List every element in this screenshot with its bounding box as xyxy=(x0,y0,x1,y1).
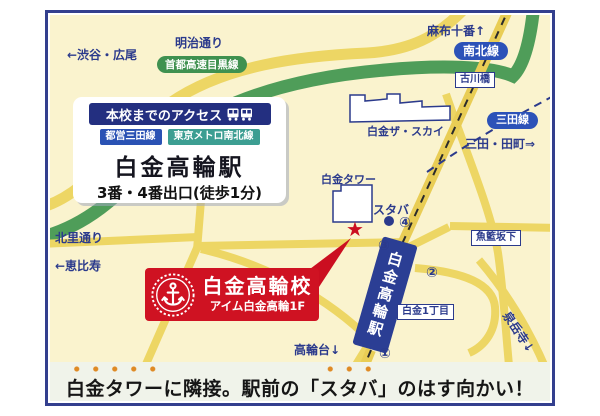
school-name: 白金高輪校 xyxy=(196,275,319,297)
banner-part-adjacent: に隣接。駅前の「 xyxy=(163,365,319,401)
metro-namboku-line-badge: 東京メトロ南北線 xyxy=(168,129,260,145)
exit-4-marker: ④ xyxy=(399,215,411,231)
expressway-label: 首都高速目黒線 xyxy=(157,56,247,73)
access-header: 本校までのアクセス xyxy=(89,103,271,125)
shibuya-hiroo-label: ←渋谷・広尾 xyxy=(67,46,137,63)
line-badges: 都営三田線 東京メトロ南北線 xyxy=(73,129,286,145)
exit-1-marker: ① xyxy=(379,346,391,362)
shirokane-1chome-badge: 白金1丁目 xyxy=(397,304,454,320)
namboku-line-badge: 南北線 xyxy=(454,42,508,60)
meiji-dori-label: 明治通り xyxy=(175,34,223,51)
takanawadai-label: 高輪台↓ xyxy=(294,341,340,358)
furukawabashi-badge: 古川橋 xyxy=(455,72,495,88)
location-star-icon: ★ xyxy=(346,219,364,239)
banner-part-across: 」のはす向かい！ xyxy=(378,365,534,401)
exit-2-marker: ② xyxy=(426,265,438,281)
access-info-box: 本校までのアクセス 都営三田線 東京メトロ南北線 白金高輪駅 3番・4番出口(徒… xyxy=(73,97,286,203)
access-header-label: 本校までのアクセス xyxy=(106,105,222,124)
ebisu-label: ←恵比寿 xyxy=(55,257,101,274)
bottom-banner: 白金タワーに隣接。駅前の「スタバ」のはす向かい！ xyxy=(45,362,555,406)
shirokane-sky-building xyxy=(350,94,450,122)
mita-line-badge: 三田線 xyxy=(487,112,538,129)
banner-part-starbucks: スタバ xyxy=(320,365,379,401)
shirokane-sky-label: 白金ザ・スカイ xyxy=(367,123,444,139)
banner-part-tower: 白金タワー xyxy=(66,365,164,401)
train-icon xyxy=(227,108,253,121)
school-address: アイム白金高輪1F xyxy=(196,298,319,314)
mita-tamachi-label: 三田・田町⇒ xyxy=(465,135,535,152)
station-title: 白金高輪駅 xyxy=(73,148,286,182)
toei-mita-line-badge: 都営三田線 xyxy=(100,129,162,145)
shirokane-tower-label: 白金タワー xyxy=(321,171,376,187)
school-location-box: 白金高輪校 アイム白金高輪1F xyxy=(145,268,319,321)
access-map: ←渋谷・広尾 明治通り 首都高速目黒線 麻布十番↑ 南北線 古川橋 三田線 三田… xyxy=(45,10,555,406)
gyoran-sakashita-badge: 魚籃坂下 xyxy=(471,230,521,246)
azabu-juban-label: 麻布十番↑ xyxy=(427,22,485,39)
exit-3-marker: ③ xyxy=(378,238,390,254)
banner-text: 白金タワーに隣接。駅前の「スタバ」のはす向かい！ xyxy=(66,365,534,406)
exit-info: 3番・4番出口(徒歩1分) xyxy=(73,182,286,203)
anchor-logo-icon xyxy=(150,272,196,318)
school-text: 白金高輪校 アイム白金高輪1F xyxy=(196,275,319,314)
kitasato-dori-label: 北里通り xyxy=(55,229,103,246)
